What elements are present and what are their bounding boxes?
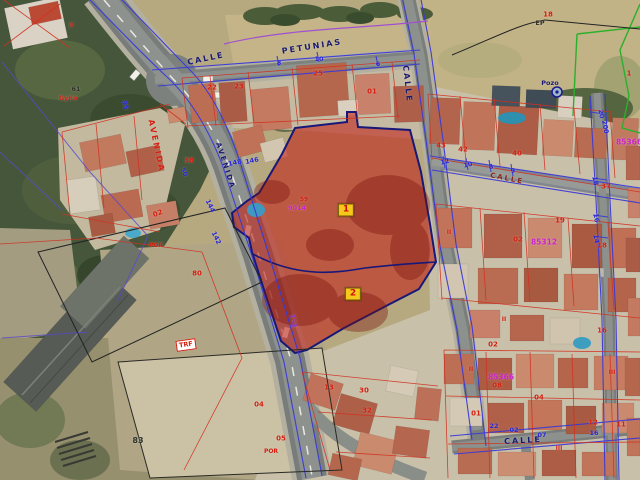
map-canvas	[0, 0, 640, 480]
aerial-cadastral-map: CALLEPETUNIASCALLEAVENIDAAVENIDACALLECAL…	[0, 0, 640, 480]
well-icon	[552, 87, 562, 97]
